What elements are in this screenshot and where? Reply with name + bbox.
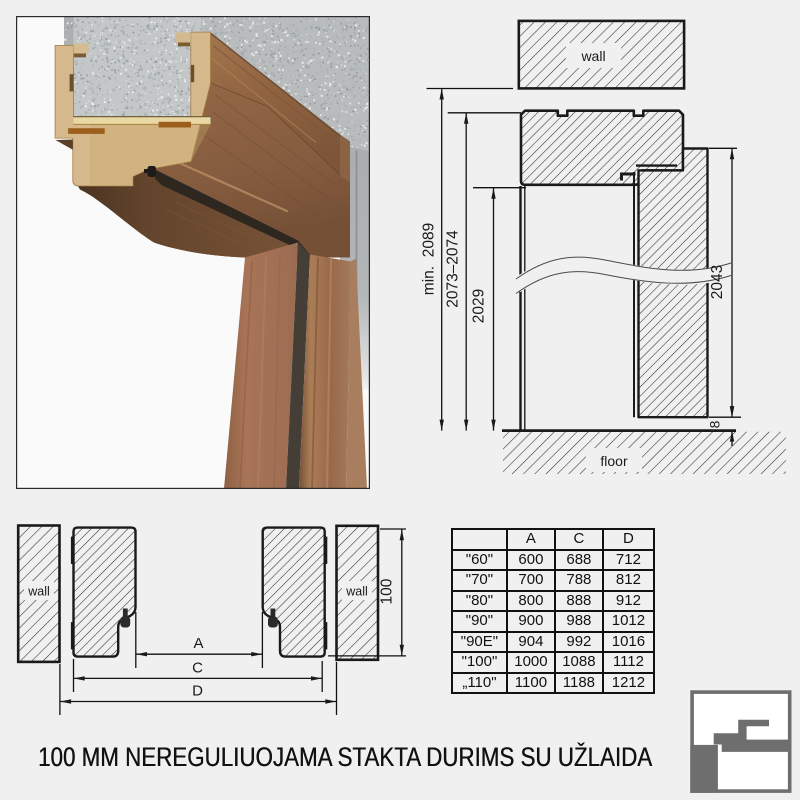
svg-text:wall: wall <box>580 48 605 64</box>
svg-text:C: C <box>192 660 203 677</box>
svg-text:2043: 2043 <box>709 265 726 299</box>
svg-text:A: A <box>193 635 203 652</box>
svg-text:8: 8 <box>707 420 723 428</box>
svg-text:min. 2089: min. 2089 <box>421 223 438 295</box>
svg-text:wall: wall <box>27 585 50 599</box>
svg-text:wall: wall <box>345 585 368 599</box>
svg-text:D: D <box>192 683 203 700</box>
svg-text:2029: 2029 <box>471 289 488 323</box>
svg-text:2073–2074: 2073–2074 <box>445 230 462 308</box>
svg-text:100: 100 <box>379 578 396 604</box>
svg-text:floor: floor <box>600 453 628 469</box>
